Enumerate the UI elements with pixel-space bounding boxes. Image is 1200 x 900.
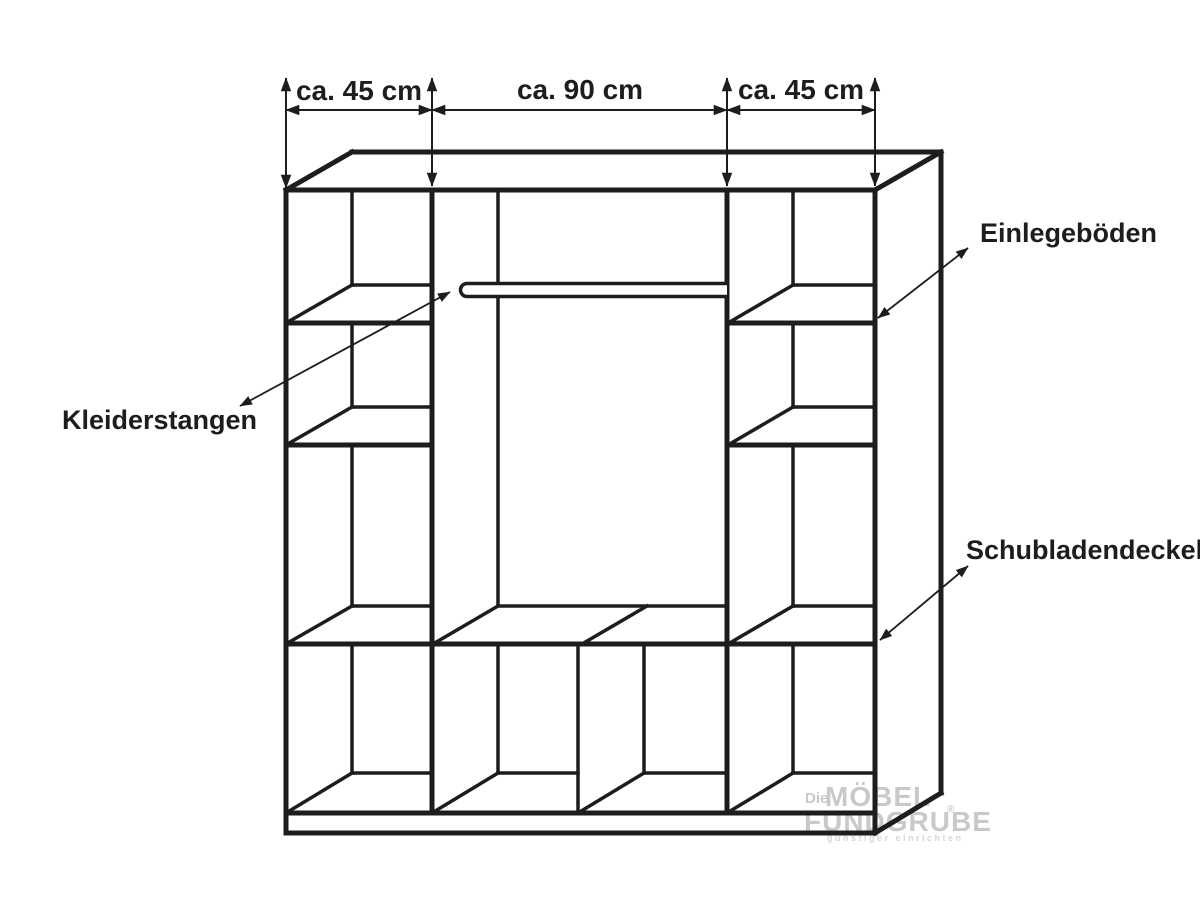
clothes-rail-arrow	[240, 292, 450, 406]
drawer-floor-depth-2	[432, 773, 498, 813]
diagram-canvas: Die MÖBEL FUNDGRUBE ® günstiger einricht…	[0, 0, 1200, 900]
drawer-top-right-depth	[728, 606, 793, 644]
wardrobe-diagram: Die MÖBEL FUNDGRUBE ® günstiger einricht…	[0, 0, 1200, 900]
drawer-top-middle-depth	[433, 606, 498, 644]
shelves-arrow	[878, 248, 968, 318]
top-right-depth-edge	[875, 152, 941, 190]
drawer-covers-label: Schubladendeckel	[966, 535, 1200, 565]
shelf-b-left-depth	[286, 407, 352, 445]
drawer-covers-arrow	[880, 566, 968, 640]
clothes-rail-label: Kleiderstangen	[62, 405, 257, 435]
dimension-label-middle: ca. 90 cm	[517, 74, 643, 105]
drawer-floor-depth-1	[286, 773, 352, 813]
wardrobe-carcass-lines	[286, 152, 941, 833]
drawer-floor-depth-3	[578, 773, 644, 813]
dimension-label-right: ca. 45 cm	[738, 74, 864, 105]
watermark-registered-icon: ®	[947, 804, 955, 815]
shelf-a-right-depth	[728, 285, 793, 323]
drawer-floor-depth-4	[727, 773, 793, 813]
shelf-a-left-depth	[286, 285, 352, 323]
top-left-depth-edge	[286, 152, 352, 190]
dimension-label-left: ca. 45 cm	[296, 75, 422, 106]
shelves-label: Einlegeböden	[980, 218, 1157, 248]
shelf-b-right-depth	[728, 407, 793, 445]
drawer-lid-seam	[582, 606, 647, 644]
clothes-rail	[461, 284, 728, 297]
drawer-top-left-depth	[286, 606, 352, 644]
